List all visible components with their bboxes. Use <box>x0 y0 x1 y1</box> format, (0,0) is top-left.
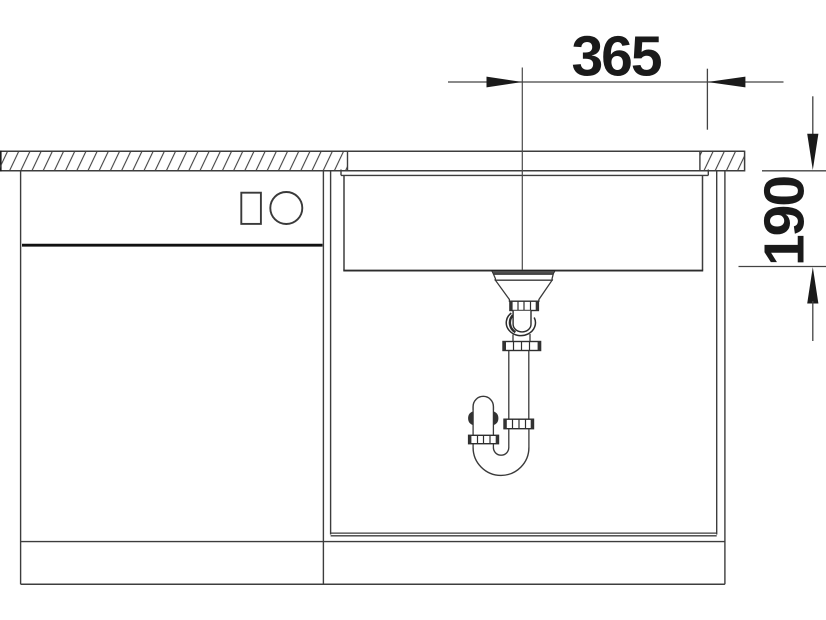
svg-text:190: 190 <box>753 177 817 266</box>
svg-text:365: 365 <box>571 24 661 88</box>
